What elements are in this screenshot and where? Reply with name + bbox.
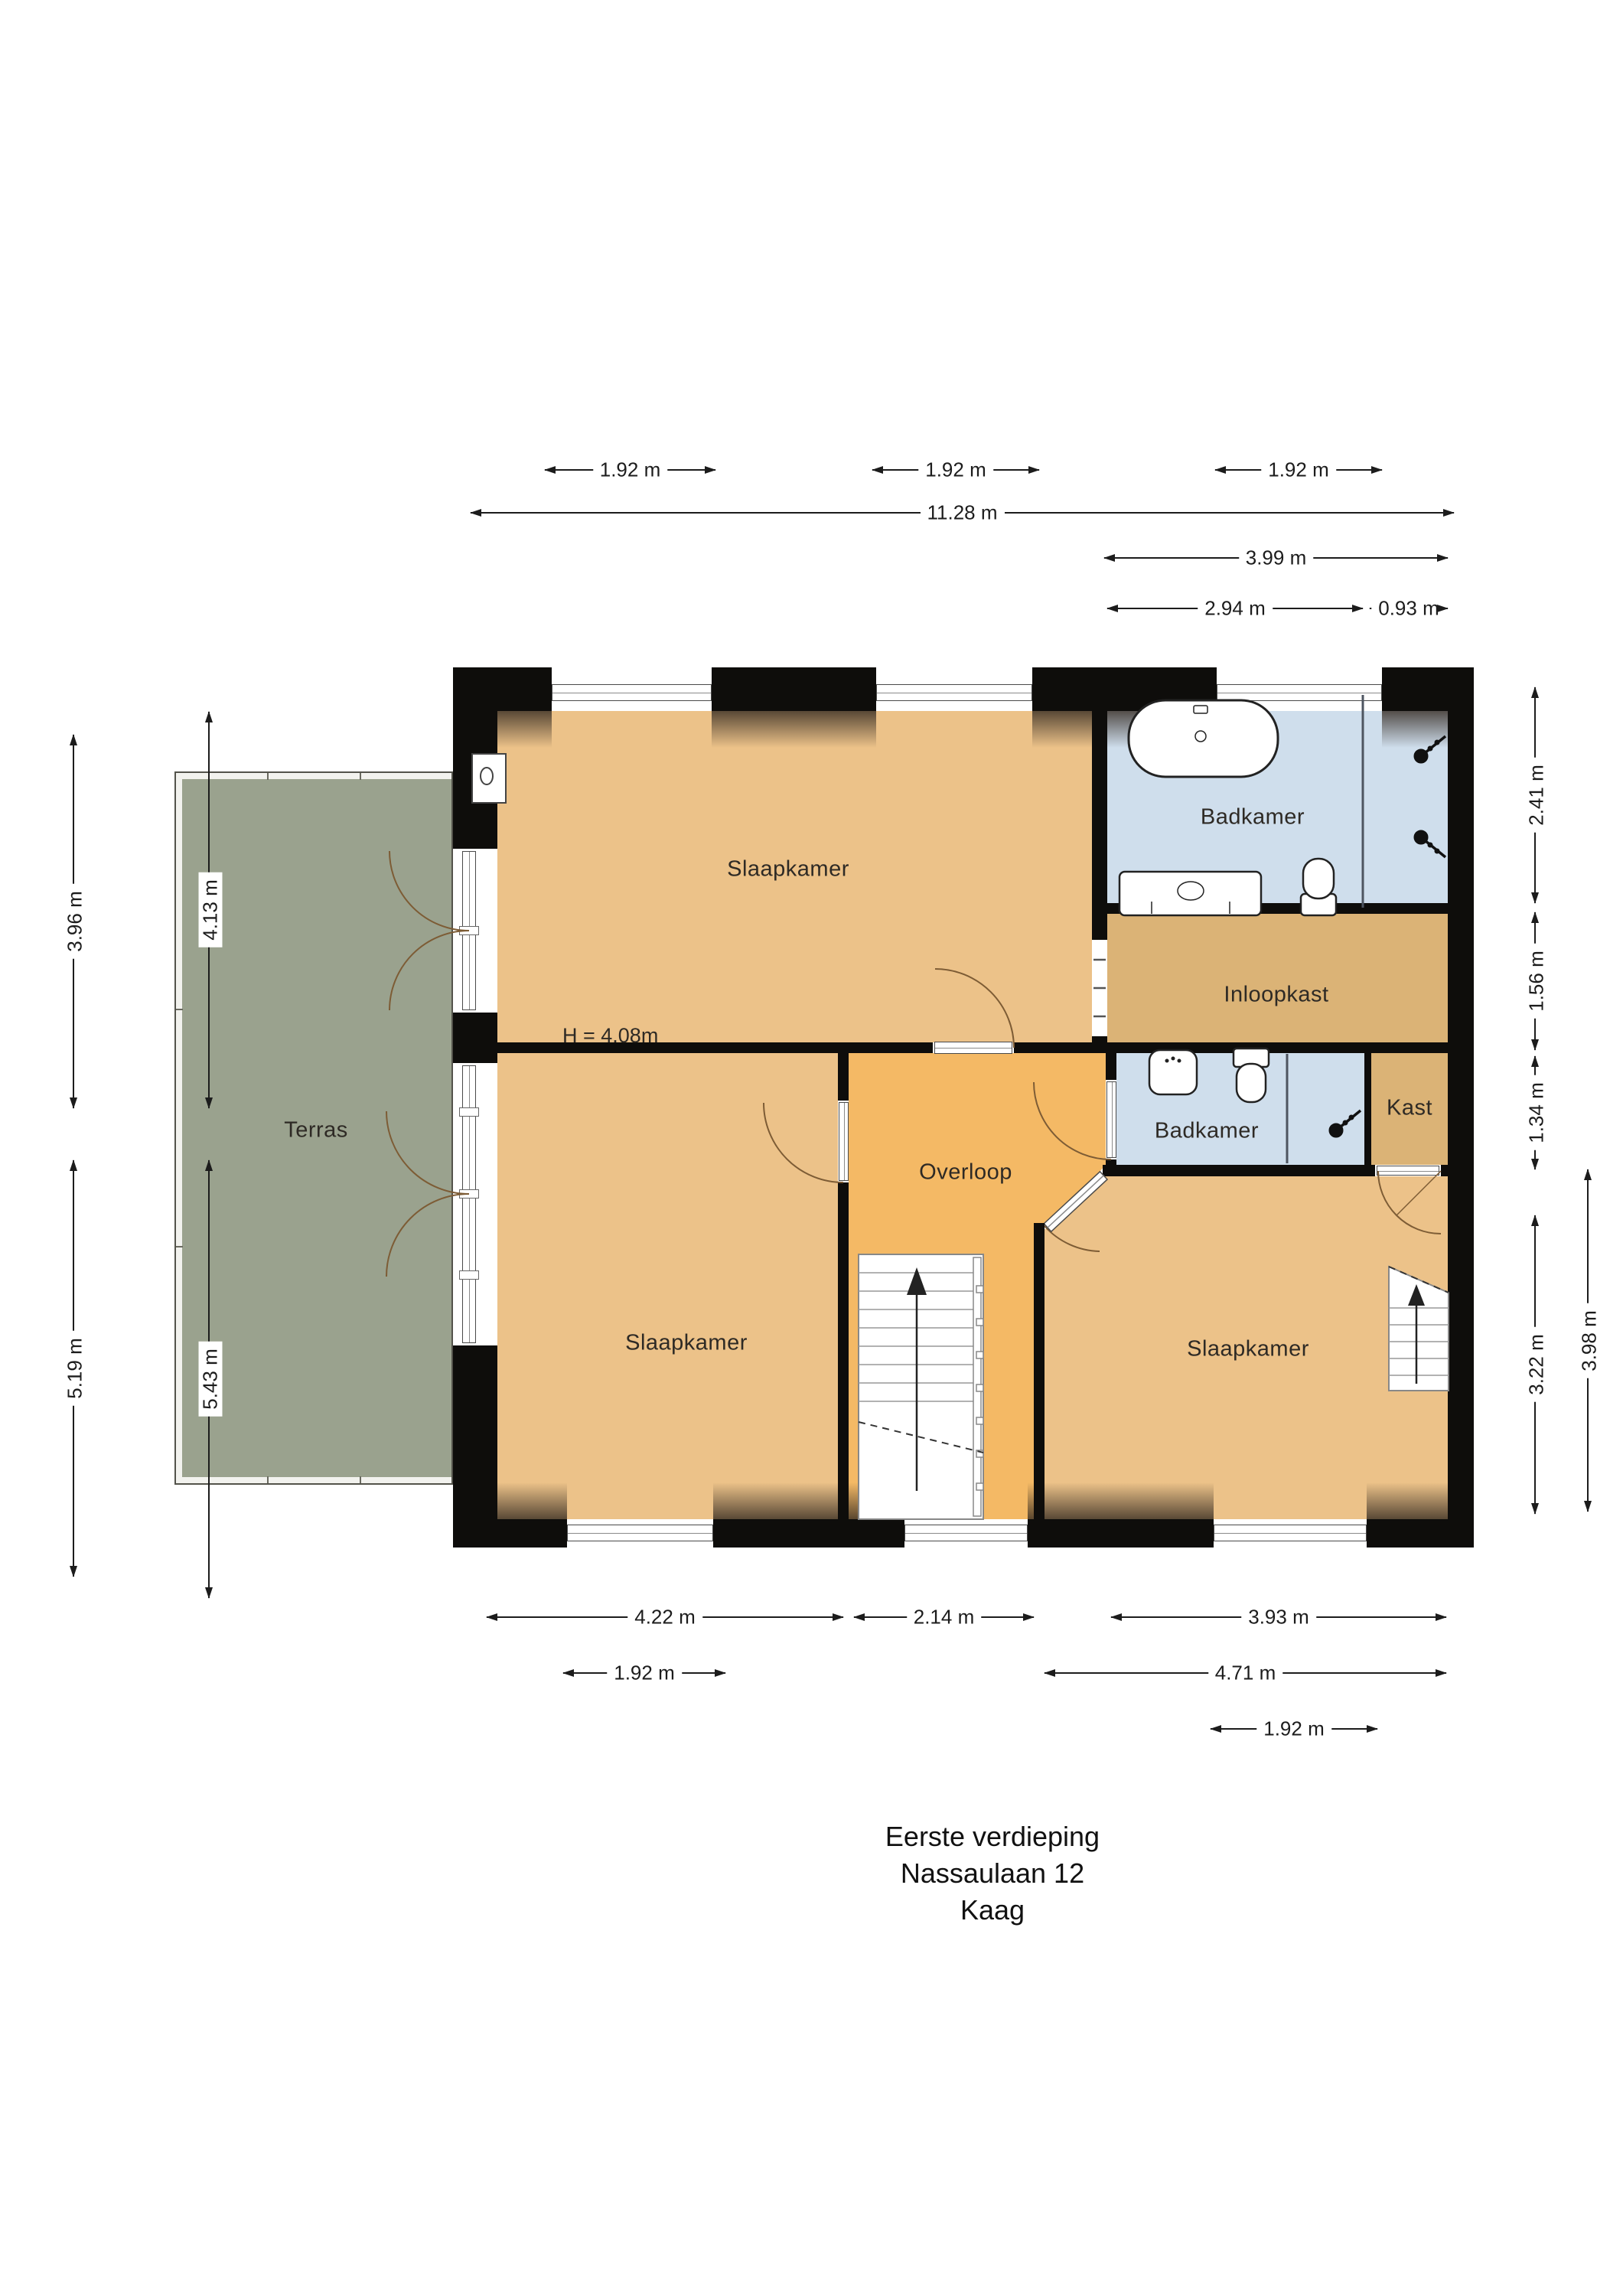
dimension-small-bath-depth: 1.34 m [1534,1056,1536,1169]
room-label-slaapkamer-top: Slaapkamer [727,857,849,882]
dimension-bedroom-left-width: 4.22 m [487,1616,843,1618]
vanity-sink [1119,872,1261,915]
door-swing-arcs [386,851,1441,1277]
washbasin [1149,1050,1197,1094]
dimension-total-width: 11.28 m [471,512,1454,514]
dimension-window-3: 1.92 m [1215,469,1382,471]
dimension-window-bottom-left: 1.92 m [563,1672,725,1674]
floor-plan-canvas: Slaapkamer Badkamer Inloopkast Badkamer … [0,0,1623,2296]
dimension-left-lower: 5.43 m [208,1160,210,1598]
staircase-main [859,1254,983,1519]
wall-stub [1034,1223,1045,1234]
plan-linework [0,0,1623,2296]
dimension-shower-section: 0.93 m [1370,608,1448,609]
dimension-overloop-width: 2.14 m [854,1616,1034,1618]
dimension-terrace-top: 3.96 m [73,735,74,1108]
title-block: Eerste verdieping Nassaulaan 12 Kaag [885,1818,1100,1929]
dimension-bathroom-width: 3.99 m [1104,557,1448,559]
toilet [1301,859,1336,915]
ceiling-height-note: H = 4.08m [562,1024,658,1048]
room-label-slaapkamer-left: Slaapkamer [625,1331,748,1356]
open-doorway-ticks [1093,960,1106,1016]
dimension-bath-section: 2.94 m [1107,608,1363,609]
title-city: Kaag [885,1892,1100,1929]
dimension-left-upper: 4.13 m [208,712,210,1108]
dimension-bedroom-right-full: 4.71 m [1045,1672,1446,1674]
room-label-terras: Terras [284,1118,348,1143]
dimension-terrace-bottom: 5.19 m [73,1160,74,1577]
wall-fixture [472,754,506,803]
staircase-secondary [1389,1267,1449,1391]
room-label-badkamer-main: Badkamer [1201,805,1305,830]
title-floor: Eerste verdieping [885,1818,1100,1855]
dimension-window-2: 1.92 m [872,469,1039,471]
room-label-badkamer-small: Badkamer [1155,1119,1259,1144]
room-label-kast: Kast [1387,1096,1432,1121]
dimension-window-bottom-right: 1.92 m [1211,1728,1377,1730]
title-address: Nassaulaan 12 [885,1855,1100,1892]
dimension-window-1: 1.92 m [545,469,715,471]
dimension-closet-depth: 1.56 m [1534,912,1536,1050]
room-label-overloop: Overloop [919,1160,1012,1186]
diagonal-door-leaf [1044,1172,1107,1231]
shower-head [1414,736,1445,763]
dimension-bedroom-right-depth: 3.22 m [1534,1215,1536,1514]
shower-head [1329,1110,1361,1137]
room-label-slaapkamer-right: Slaapkamer [1187,1337,1309,1362]
room-label-inloopkast: Inloopkast [1224,983,1328,1008]
bathtub [1129,700,1278,777]
dimension-bathroom-depth: 2.41 m [1534,687,1536,903]
toilet [1234,1049,1269,1102]
dimension-bedroom-right-width: 3.93 m [1111,1616,1446,1618]
shower-head [1414,830,1445,857]
dimension-bedroom-right-depth-full: 3.98 m [1587,1169,1589,1512]
